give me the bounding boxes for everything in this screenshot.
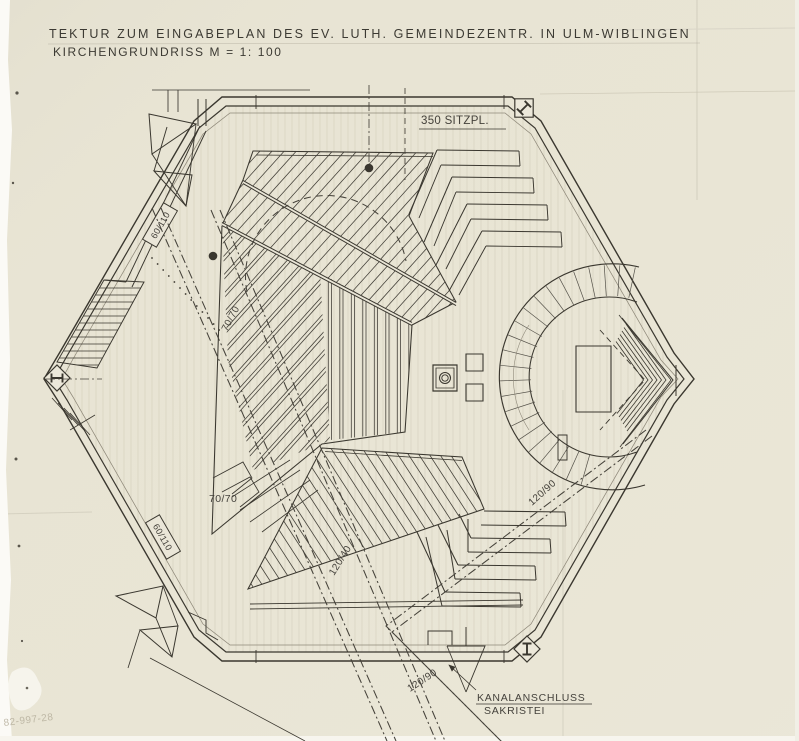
svg-text:350 SITZPL.: 350 SITZPL.: [421, 115, 489, 127]
svg-text:KIRCHENGRUNDRISS M = 1: 100: KIRCHENGRUNDRISS M = 1: 100: [53, 45, 283, 59]
svg-text:SAKRISTEI: SAKRISTEI: [484, 705, 545, 717]
svg-text:TEKTUR ZUM EINGABEPLAN DES EV.: TEKTUR ZUM EINGABEPLAN DES EV. LUTH. GEM…: [49, 27, 691, 41]
svg-text:70/70: 70/70: [209, 493, 237, 505]
svg-text:KANALANSCHLUSS: KANALANSCHLUSS: [477, 692, 585, 704]
